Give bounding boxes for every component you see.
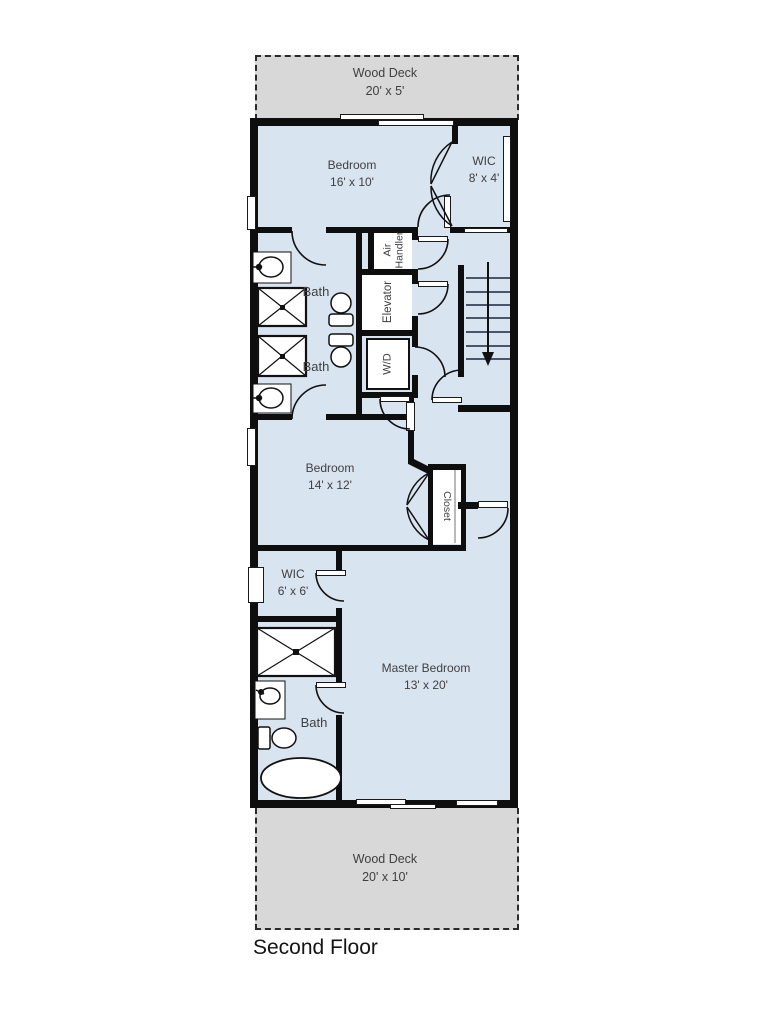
deck-top-name: Wood Deck <box>285 64 485 82</box>
room-dims: 14' x 12' <box>268 477 392 494</box>
room-label-elevator: Elevator <box>358 272 418 332</box>
room-master-bath <box>258 622 336 800</box>
sliding-door-panel <box>378 120 454 126</box>
wall-segment <box>510 118 518 808</box>
deck-bottom-dims: 20' x 10' <box>285 868 485 886</box>
wall-segment <box>408 429 414 464</box>
room-name: Bath <box>289 714 339 733</box>
stairwell <box>464 265 510 405</box>
room-label-wic-1: WIC 8' x 4' <box>452 153 516 188</box>
room-dims: 16' x 10' <box>290 174 414 191</box>
room-dims: 8' x 4' <box>452 170 516 187</box>
floor-title: Second Floor <box>253 936 378 960</box>
deck-label: Wood Deck 20' x 5' <box>285 64 485 100</box>
window <box>456 800 498 806</box>
room-name: Bath <box>291 283 341 302</box>
wall-segment <box>250 414 292 420</box>
deck-bottom-name: Wood Deck <box>285 850 485 868</box>
room-name: W/D <box>382 353 394 374</box>
door-leaf <box>478 501 508 508</box>
room-label-bedroom-2: Bedroom 14' x 12' <box>268 460 392 495</box>
wall-segment <box>250 616 342 622</box>
room-name: Master Bedroom <box>346 660 506 677</box>
room-name: Closet <box>441 491 453 521</box>
room-label-master-bedroom: Master Bedroom 13' x 20' <box>346 660 506 695</box>
room-label-bath-2: Bath <box>291 358 341 377</box>
hallway <box>418 233 458 405</box>
wall-segment <box>458 265 464 377</box>
room-bath-1 <box>258 233 356 327</box>
room-label-bedroom-1: Bedroom 16' x 10' <box>290 157 414 192</box>
wall-segment <box>336 551 342 570</box>
door-leaf <box>418 281 448 287</box>
room-name: Air <box>381 232 393 269</box>
room-name: WIC <box>452 153 516 170</box>
room-label-bath-1: Bath <box>291 283 341 302</box>
wall-segment <box>458 405 510 412</box>
door-leaf <box>432 397 462 403</box>
room-name: Handler <box>393 232 405 269</box>
door-leaf <box>444 196 451 228</box>
sliding-door-panel <box>390 804 436 809</box>
room-label-master-bath: Bath <box>289 714 339 733</box>
room-label-laundry: W/D <box>358 334 418 394</box>
window <box>247 428 256 466</box>
closet-shelf-icon <box>464 228 508 233</box>
room-label-wic-2: WIC 6' x 6' <box>261 566 325 601</box>
room-dims: 6' x 6' <box>261 583 325 600</box>
floor-plan: Wood Deck 20' x 5' Bedroom 16' x 10' WIC… <box>0 0 768 1024</box>
room-name: Bath <box>291 358 341 377</box>
deck-label: Wood Deck 20' x 10' <box>285 850 485 886</box>
room-name: Bedroom <box>268 460 392 477</box>
window <box>247 196 256 230</box>
wall-segment <box>250 545 466 551</box>
door-opening <box>406 402 415 431</box>
door-leaf <box>316 682 346 688</box>
room-name: WIC <box>261 566 325 583</box>
wall-segment <box>258 227 292 233</box>
room-dims: 13' x 20' <box>346 677 506 694</box>
wall-segment <box>326 414 414 420</box>
deck-top-dims: 20' x 5' <box>285 82 485 100</box>
room-label-closet: Closet <box>417 476 477 536</box>
room-name: Elevator <box>382 281 394 323</box>
room-label-air-handler: Air Handler <box>363 220 423 280</box>
room-name: Bedroom <box>290 157 414 174</box>
